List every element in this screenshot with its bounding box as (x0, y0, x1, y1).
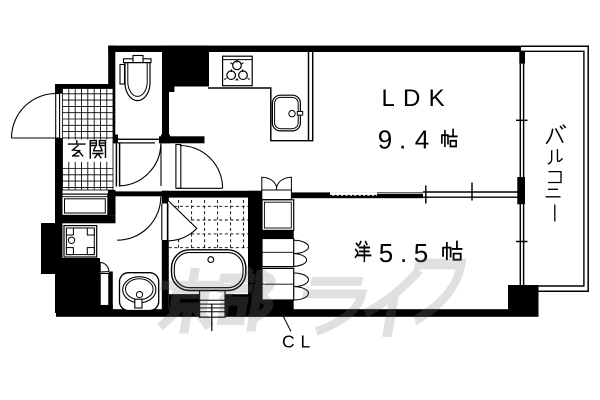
svg-text:L: L (301, 332, 311, 352)
svg-text:5: 5 (379, 238, 393, 268)
svg-text:4: 4 (415, 124, 429, 154)
svg-text:LDK: LDK (382, 85, 453, 112)
svg-text:9: 9 (378, 124, 392, 154)
svg-text:.: . (399, 124, 406, 154)
svg-text:.: . (400, 238, 407, 268)
svg-text:C: C (282, 332, 295, 352)
